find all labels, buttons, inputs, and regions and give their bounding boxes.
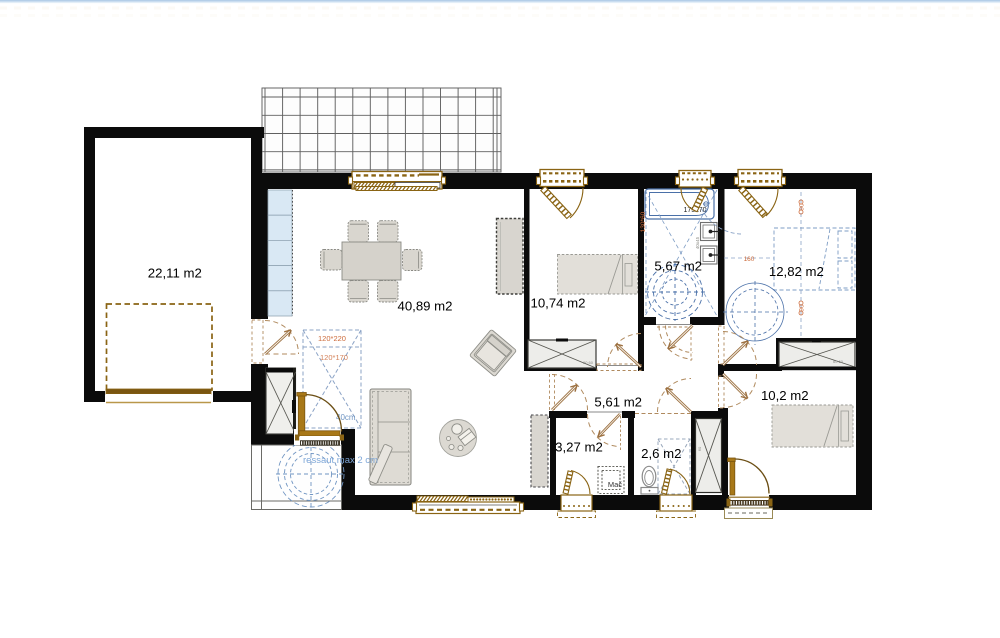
svg-text:3,27 m2: 3,27 m2 [555, 440, 603, 455]
svg-text:60 60: 60 60 [833, 359, 844, 364]
svg-text:60 60: 60 60 [583, 360, 594, 365]
svg-text:22,11 m2: 22,11 m2 [148, 266, 202, 281]
svg-text:2,6 m2: 2,6 m2 [641, 446, 681, 461]
svg-text:120*220: 120*220 [318, 334, 346, 343]
svg-text:160: 160 [744, 256, 755, 263]
svg-text:90: 90 [799, 304, 806, 312]
svg-text:90: 90 [799, 203, 806, 211]
svg-text:10,2 m2: 10,2 m2 [761, 388, 809, 403]
svg-text:120*170: 120*170 [320, 353, 348, 362]
svg-text:10,74 m2: 10,74 m2 [531, 296, 586, 311]
svg-text:12,82 m2: 12,82 m2 [769, 264, 824, 279]
svg-text:Mač: Mač [608, 480, 622, 489]
svg-text:5,61 m2: 5,61 m2 [594, 394, 642, 409]
svg-text:40x45: 40x45 [695, 236, 700, 249]
svg-text:40,89 m2: 40,89 m2 [398, 299, 453, 314]
svg-text:ressaut max 2 cm: ressaut max 2 cm [303, 455, 378, 466]
svg-text:5,67 m2: 5,67 m2 [654, 258, 702, 273]
svg-text:60: 60 [697, 446, 702, 451]
